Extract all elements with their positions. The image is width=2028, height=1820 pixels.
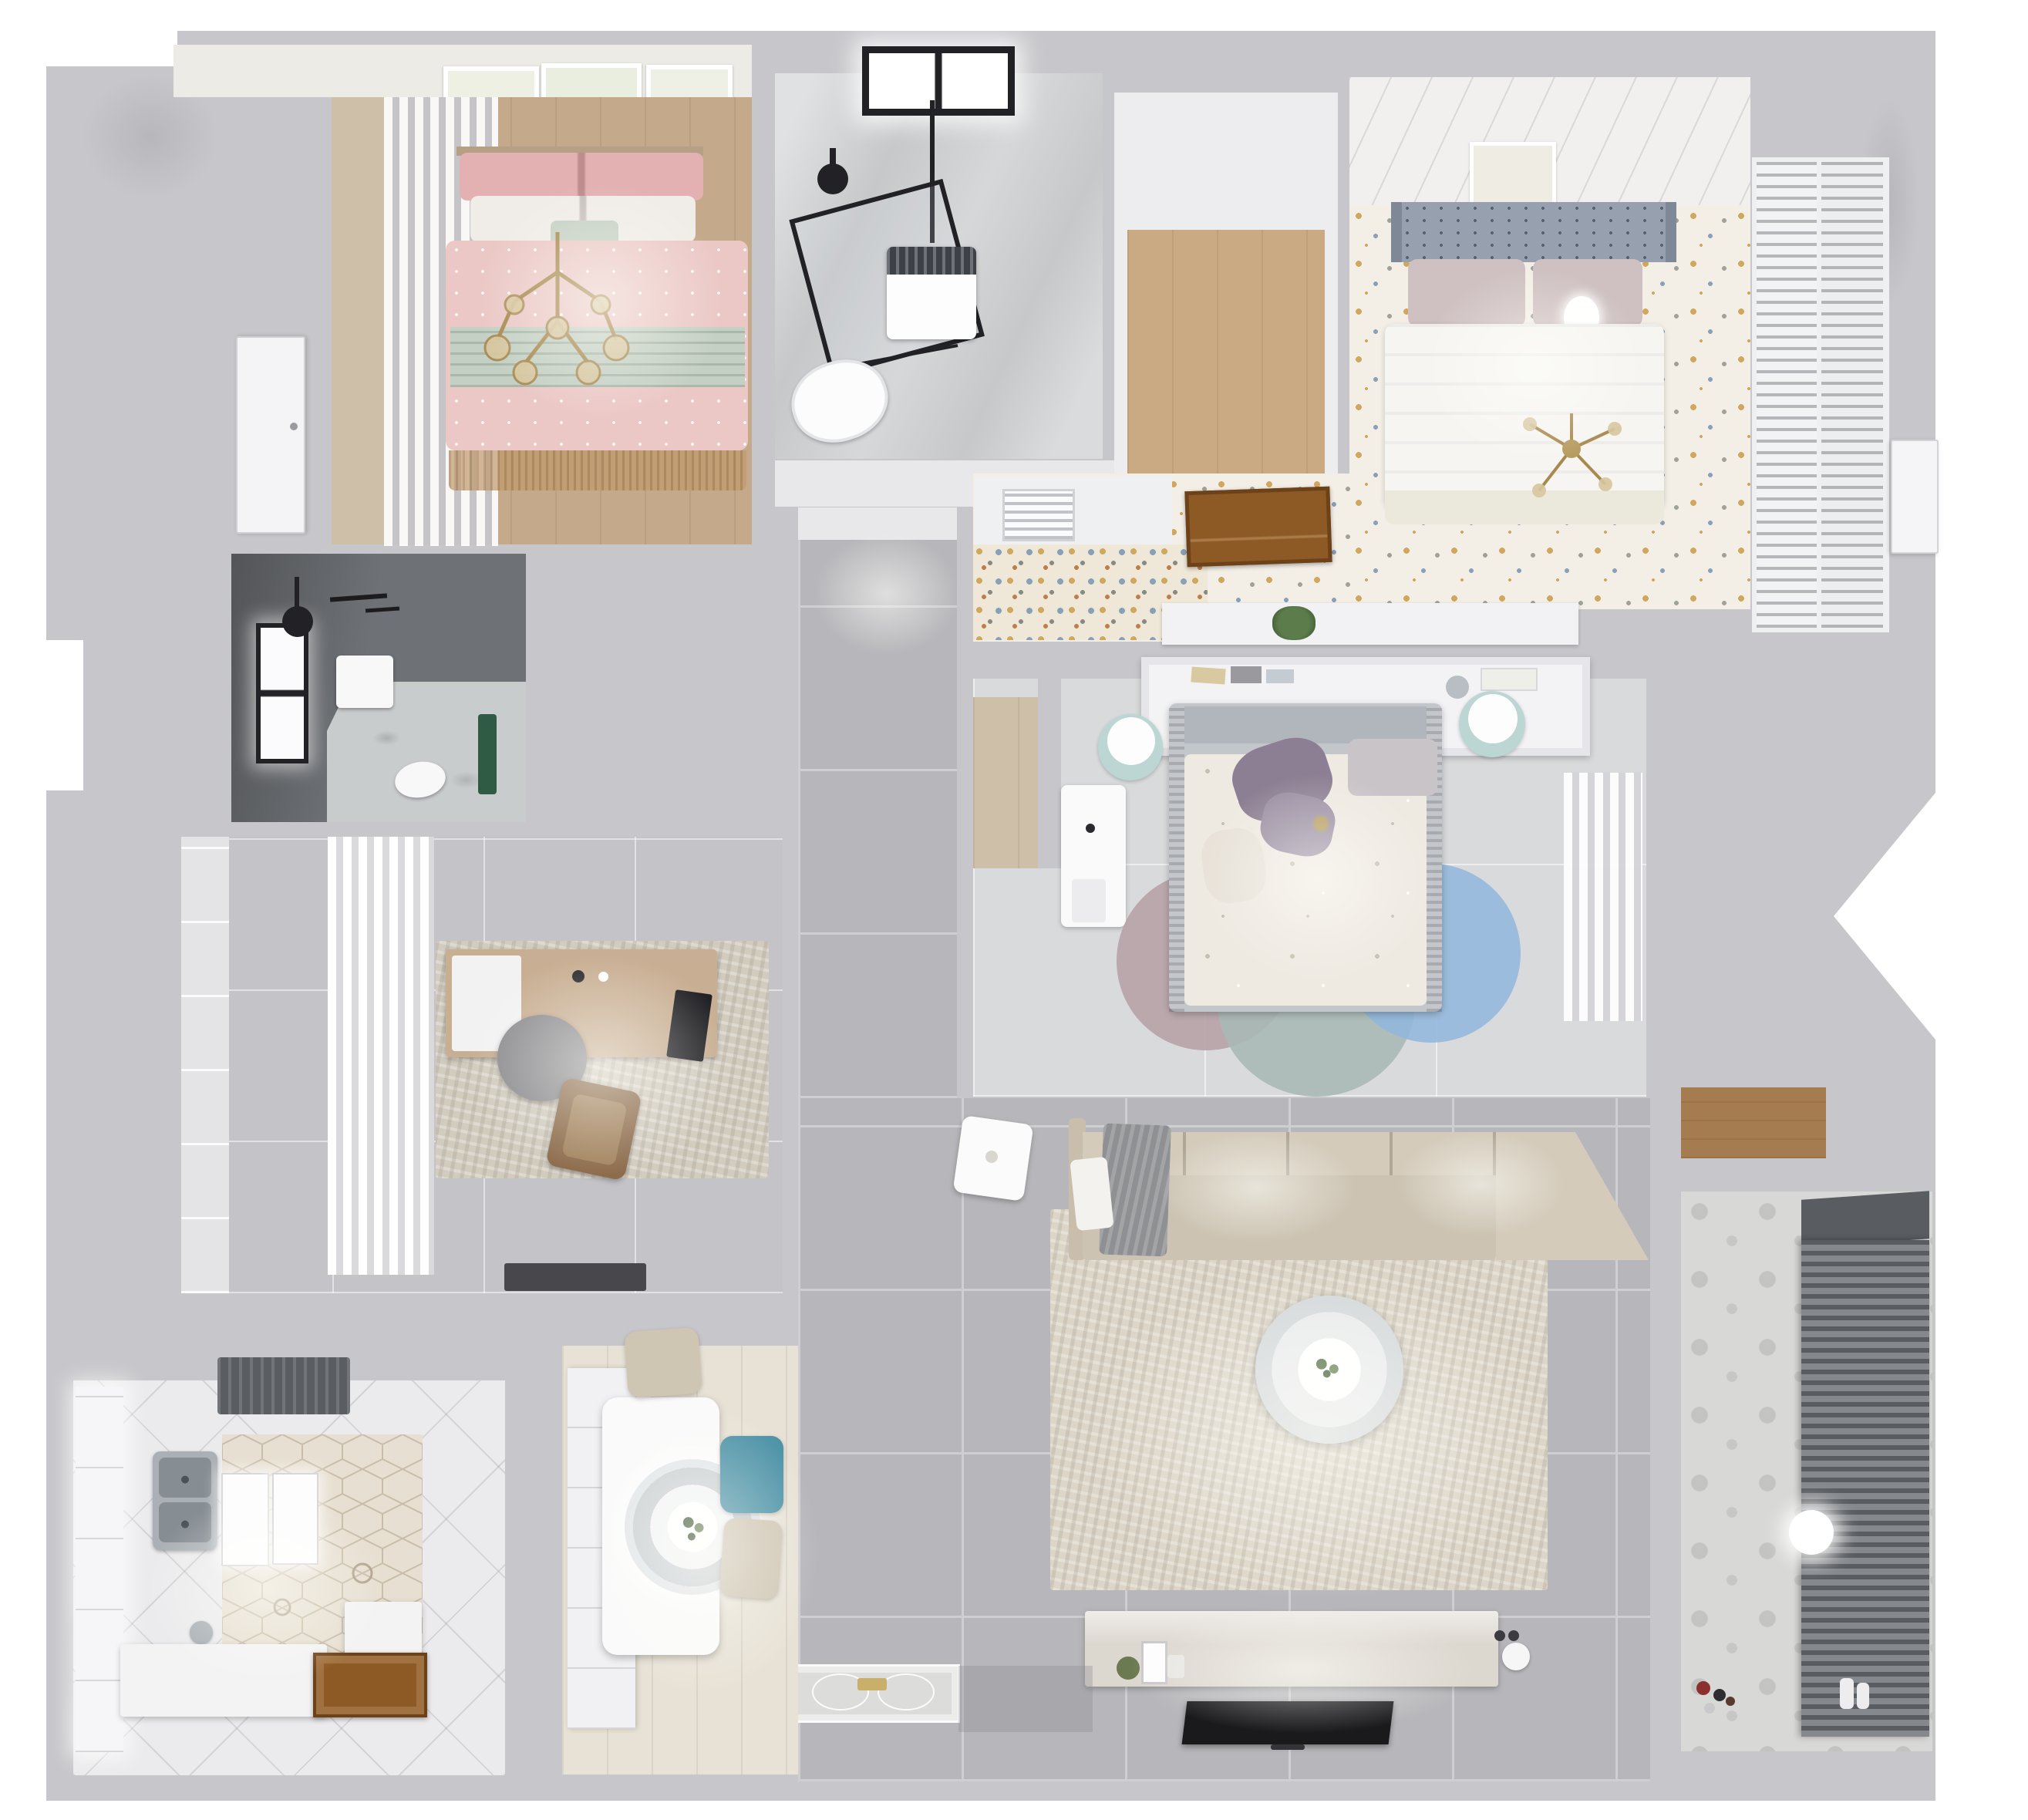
tv-stand: [1271, 1744, 1305, 1750]
white-door-leaf: [236, 336, 305, 534]
bathroom1-window: [862, 46, 1015, 116]
chandelier-bulb: [505, 295, 524, 314]
shutter-panel: [1821, 162, 1883, 628]
shower-head: [817, 163, 848, 194]
sink-basin: [159, 1458, 211, 1498]
study-window-wall: [181, 837, 229, 1293]
study-dark-mat: [504, 1263, 646, 1291]
bed3-rail: [1169, 703, 1184, 1012]
open-cabinet-door: [272, 1473, 318, 1565]
book: [1231, 666, 1262, 683]
sphere-lamp: [1789, 1510, 1834, 1555]
sink-basin: [159, 1502, 211, 1542]
console-knob: [1494, 1630, 1505, 1641]
pendant-bulb: [1532, 484, 1546, 497]
kitchen-faucet: [190, 1621, 213, 1644]
bedside-stool-top: [1107, 717, 1155, 765]
bottle: [1840, 1678, 1854, 1709]
plant-ledge: [1162, 603, 1578, 645]
console-knob: [1508, 1630, 1519, 1641]
console-photo-frame: [1141, 1641, 1167, 1684]
bottle: [1857, 1683, 1869, 1709]
bedroom1-window-niche: [332, 97, 384, 544]
shelf-decor-bowl: [1446, 676, 1469, 699]
drying-radiator: [1801, 1240, 1929, 1737]
bed2-headboard-post: [1666, 202, 1676, 262]
tv-panel: [1182, 1701, 1394, 1744]
coffee-table-plant: [1311, 1351, 1346, 1384]
floor-toy: [1713, 1689, 1726, 1701]
floor-toy: [1696, 1681, 1710, 1695]
wood-hatch: [1184, 487, 1332, 568]
floor-toy: [1704, 1703, 1715, 1714]
study-curtain: [328, 837, 434, 1275]
entry-threshold-shadow: [958, 1666, 1093, 1732]
desk-tray: [1072, 879, 1106, 922]
desk-cup: [598, 972, 608, 982]
open-cabinet-door: [221, 1473, 269, 1566]
bed2-headboard: [1399, 202, 1670, 262]
outside-notch-left: [46, 640, 83, 790]
radiator-top: [1801, 1191, 1929, 1248]
shower-stem: [295, 577, 299, 609]
bedroom3-niche-wall: [1038, 657, 1061, 868]
shower-arm: [830, 148, 836, 167]
gold-chandelier: [467, 228, 648, 409]
gold-pendant: [1513, 398, 1630, 512]
chandelier-bulb: [577, 361, 600, 384]
gold-sprig: [1311, 814, 1331, 834]
dining-chair-beige: [624, 1327, 702, 1398]
pendant-bulb: [1608, 422, 1622, 436]
kitchen-window-strip: [76, 1387, 123, 1752]
chandelier-bulb: [514, 361, 537, 384]
ac-vent-grille: [1002, 489, 1075, 541]
chandelier-bulb: [485, 335, 510, 360]
book-stack: [1481, 668, 1538, 691]
pendant-plant: [677, 1510, 709, 1545]
desk-accessory-dot: [1086, 824, 1095, 833]
bed2-pillow: [1408, 259, 1525, 327]
range-hood: [217, 1357, 350, 1414]
console-glass: [1167, 1655, 1184, 1678]
dining-chair-beige: [719, 1517, 783, 1599]
ceiling-shower-head: [282, 606, 313, 637]
floor-plan: [0, 0, 2028, 1820]
console-vase: [1502, 1643, 1530, 1670]
doormat-clasp: [857, 1678, 887, 1690]
bed2-headboard-post: [1391, 202, 1402, 262]
chandelier-bulb: [591, 295, 610, 314]
white-door-leaf: [1891, 440, 1939, 554]
green-towel: [478, 714, 497, 794]
pendant-hub: [1562, 440, 1581, 458]
chandelier-bulb: [604, 335, 628, 360]
corridor-wall-face: [798, 507, 957, 541]
door-handle: [290, 423, 298, 430]
shutter-panel: [1757, 162, 1817, 628]
dining-chair-teal: [720, 1436, 783, 1513]
kitchen-counter: [120, 1644, 327, 1717]
bed1-pink-pillows: [460, 153, 703, 201]
sofa-white-blanket: [1070, 1157, 1113, 1232]
console-green-disc: [1117, 1657, 1140, 1680]
corridor-floor: [798, 540, 957, 1098]
bedside-stool-top: [1468, 694, 1518, 743]
bed3-pillow-gray: [1348, 739, 1437, 796]
washing-machine-panel: [887, 247, 976, 275]
book: [1191, 666, 1225, 684]
bedroom3-curtain: [1564, 773, 1642, 1021]
pendant-bulb: [1523, 417, 1537, 431]
wood-shelf-nook: [1681, 1087, 1826, 1158]
bathroom2-window: [256, 623, 308, 763]
side-table-cup: [985, 1151, 998, 1163]
book: [1266, 669, 1294, 683]
entry-door-wood: [313, 1653, 427, 1717]
cistern: [336, 656, 393, 708]
bed3-headboard: [1184, 706, 1427, 743]
bedroom3-wood-niche: [973, 697, 1038, 868]
desk-decor-dot: [572, 970, 584, 982]
pendant-bulb: [1598, 477, 1612, 491]
chandelier-bulb: [547, 317, 568, 339]
floor-toy: [1726, 1697, 1735, 1706]
wall-art: [1470, 142, 1556, 207]
potted-plant: [1272, 606, 1316, 640]
bed1-fringe: [449, 450, 746, 490]
